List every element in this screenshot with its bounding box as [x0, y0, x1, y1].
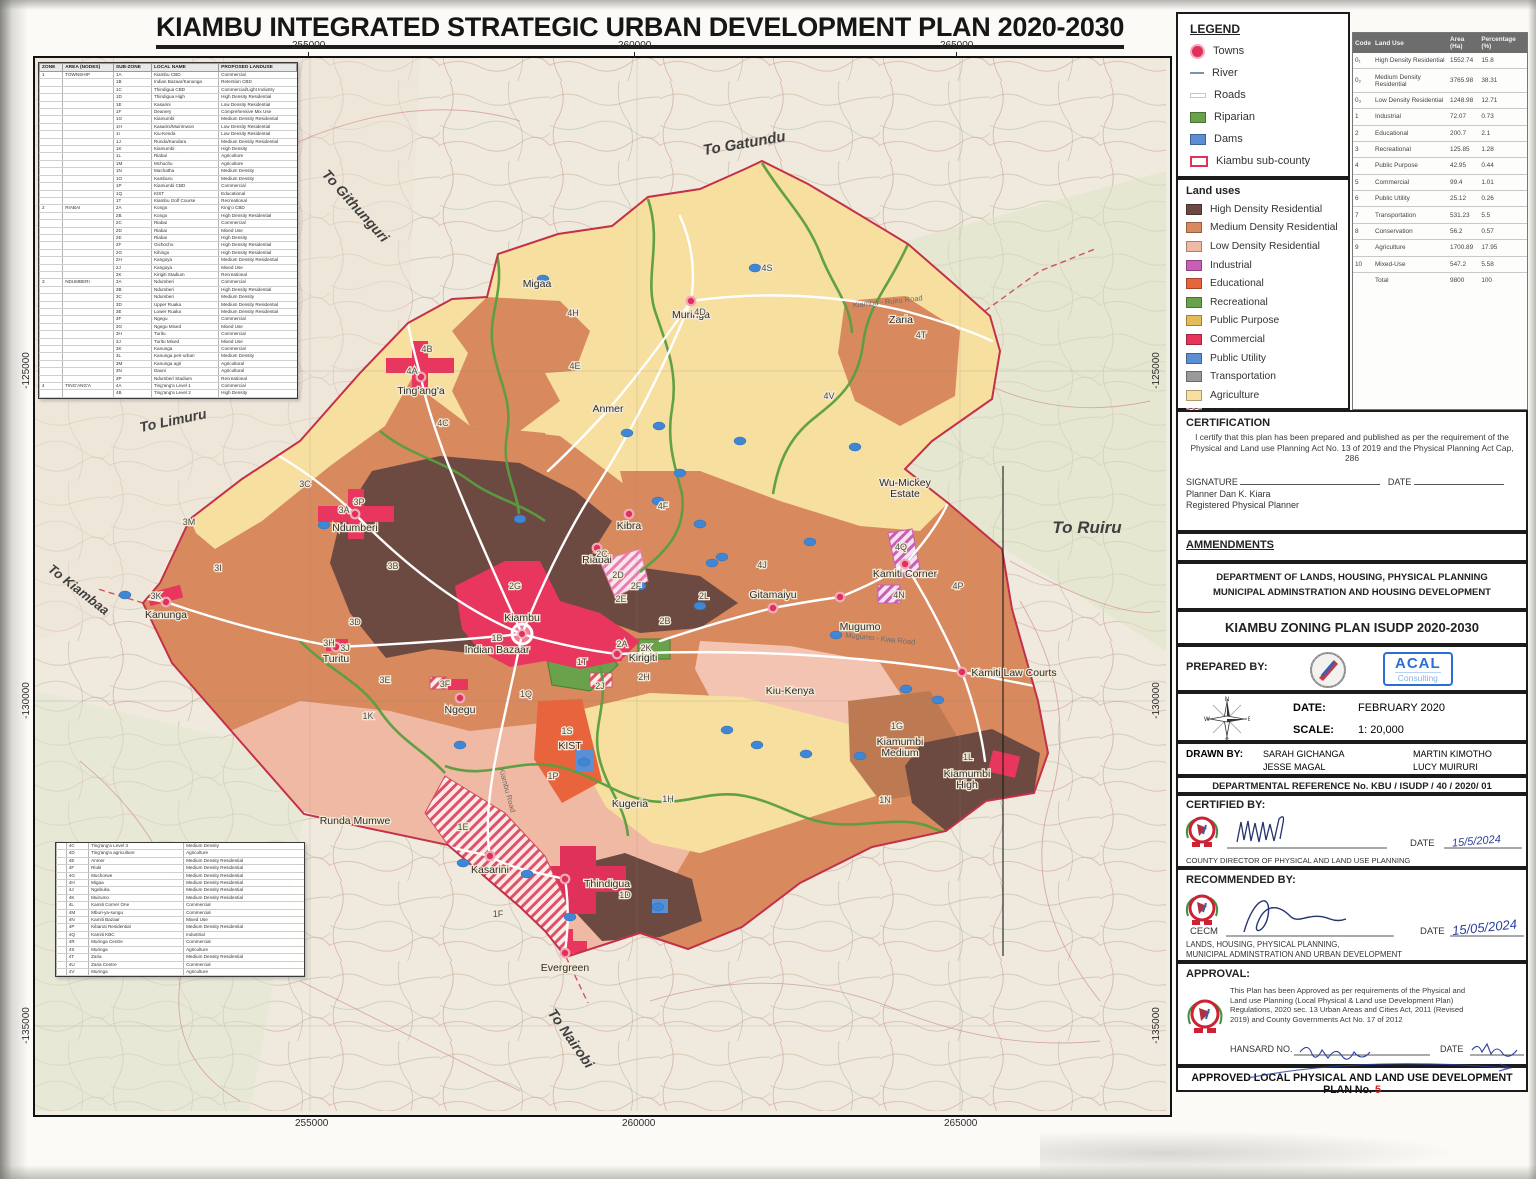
dam [652, 903, 664, 911]
zone-code: 2D [612, 570, 624, 580]
town-label: Kamiti Corner [873, 568, 938, 580]
zone-code: 3P [353, 497, 364, 507]
zone-code: 4V [823, 391, 834, 401]
place-label: KIST [558, 740, 582, 752]
zone-table-row: 2JKangoyaMixed Use [40, 264, 297, 271]
place-label: Kugeria [612, 798, 648, 810]
town-label: Gitamaiyu [749, 589, 796, 601]
legend-item: Towns [1190, 40, 1348, 62]
zone-table-row: 4MMburi-ya-sunguCommercial [57, 909, 305, 916]
zone-table-top: ZONEAREA (NODES)SUB-ZONELOCAL NAMEPROPOS… [38, 62, 298, 399]
stats-row: 7Transportation531.235.5 [1353, 207, 1527, 223]
zone-code: 3D [349, 617, 361, 627]
zone-table-row: 3ELower RuakaMedium Density Residential [40, 309, 297, 316]
town-dot-icon [958, 668, 967, 677]
zone-table-row: 4LKamiti Corner OneCommercial [57, 902, 305, 909]
direction-label: To Ruiru [1052, 518, 1122, 537]
approved-plan-bar: APPROVED LOCAL PHYSICAL AND LAND USE DEV… [1176, 1066, 1528, 1092]
zone-table-row: 4GMuchorweMedium Density Residential [57, 872, 305, 879]
dam [734, 437, 746, 445]
zone-table-row: 2HKangoyaMedium Density Residential [40, 257, 297, 264]
recommended-signature [1244, 901, 1346, 932]
signature-row: SIGNATURE DATE [1186, 474, 1518, 487]
zone-table-row: 3KKanungaCommercial [40, 346, 297, 353]
dam [694, 602, 706, 610]
town-label: Evergreen [541, 962, 590, 974]
zone-code: 4N [893, 590, 905, 600]
dept-ref-box: DEPARTMENTAL REFERENCE No. KBU / ISUDP /… [1176, 776, 1528, 794]
recommended-signature-area: CECM DATE 15/05/2024 [1182, 888, 1526, 940]
stats-row: 5Commercial99.41.01 [1353, 174, 1527, 190]
place-label: Migaa [523, 278, 552, 290]
zone-code: 1D [619, 890, 631, 900]
zone-table-row: 4VMuringaAgriculture [57, 968, 305, 975]
town-label: Ndumberi [332, 522, 378, 534]
dam [800, 750, 812, 758]
town-label: Kanunga [145, 609, 187, 621]
zone-table-row: 4EAnmerMedium Density Residential [57, 857, 305, 864]
zone-table-row: 4SMuringaAgriculture [57, 946, 305, 953]
zone-table-row: 1GKiamumbiMedium Density Residential [40, 116, 297, 123]
zone-code: 3E [379, 675, 390, 685]
zone-table-row: 3MKanunga agriAgricultural [40, 360, 297, 367]
zone-code: 2K [640, 643, 651, 653]
town-dot-icon [417, 373, 426, 382]
zone-table-row: 4QKamiti KBCIndustrial [57, 931, 305, 938]
zone-table-row: 2GKihingoHigh Density Residential [40, 249, 297, 256]
zone-code: 3C [299, 479, 311, 489]
dam [621, 429, 633, 437]
legend-item: River [1190, 62, 1348, 84]
legend-item: Dams [1190, 128, 1348, 150]
zone-table-row: 4TZariaMedium Density Residential [57, 954, 305, 961]
town-label: Ngegu [445, 704, 476, 716]
landuse-legend-item: High Density Residential [1186, 200, 1348, 219]
stats-row: 0₂Medium Density Residential3765.9838.31 [1353, 69, 1527, 92]
zone-code: 4S [761, 263, 772, 273]
scan-edge-left [0, 0, 30, 1179]
town-dot-icon [769, 604, 778, 613]
planner-name: Planner Dan K. Kiara [1186, 489, 1518, 500]
stats-row: 2Educational200.72.1 [1353, 125, 1527, 141]
zone-code: 1T [577, 657, 588, 667]
approval-box: APPROVAL: This Plan has been Approved as… [1176, 962, 1528, 1066]
zone-table-row: 1EKasariniLow Density Residential [40, 101, 297, 108]
town-dot-icon [901, 560, 910, 569]
town-dot-icon [518, 630, 526, 638]
zone-table-row: 4TING'ANG'A4ATing'ang'a Level 1Commercia… [40, 383, 297, 390]
landuse-swatch-icon [1186, 390, 1202, 401]
drawn-name-3: MARTIN KIMOTHO [1413, 749, 1492, 759]
grid-coord-left-2: -130000 [21, 682, 32, 719]
zone-table-row: 3GNgegu MixedMixed Use [40, 323, 297, 330]
dam [849, 443, 861, 451]
zone-table-row: 2FGichochoHigh Density Residential [40, 242, 297, 249]
certified-title: COUNTY DIRECTOR OF PHYSICAL AND LAND USE… [1186, 856, 1410, 865]
zone-code: 1L [963, 752, 973, 762]
zone-code: 3H [323, 638, 335, 648]
zone-table-row: 1PKiamumbi CBDCommercial [40, 183, 297, 190]
date-label: DATE: [1293, 702, 1326, 714]
zone-table-row: 4CTing'ang'a Level 3Medium Density [57, 843, 305, 850]
zone-table-row: 1LRiabaiAgriculture [40, 153, 297, 160]
stats-row: 4Public Purpose42.950.44 [1353, 158, 1527, 174]
zone-code: 3A [338, 505, 349, 515]
hansard-row: HANSARD NO. DATE [1182, 1038, 1526, 1064]
zone-table-row: 1QKISTEducational [40, 190, 297, 197]
dam [932, 696, 944, 704]
prepared-by-label: PREPARED BY: [1186, 661, 1268, 673]
recommended-dept1: LANDS, HOUSING, PHYSICAL PLANNING, [1186, 940, 1340, 949]
zone-code: 1K [362, 711, 373, 721]
zone-table-row: 4KMuirumoMedium Density Residential [57, 894, 305, 901]
zone-table-row: 3NDUMBERI3ANdumberiCommercial [40, 279, 297, 286]
town-label: Kasarini [471, 864, 509, 876]
certification-box: CERTIFICATION I certify that this plan h… [1176, 410, 1528, 532]
zone-table-row: 3JTuritu MixedMixed Use [40, 338, 297, 345]
legend-item: Roads [1190, 84, 1348, 106]
landuse-legend-item: Recreational [1186, 293, 1348, 312]
grid-coord-bottom-1: 255000 [295, 1118, 328, 1129]
grid-coord-left-1: -125000 [21, 352, 32, 389]
zone-code: 1S [561, 726, 572, 736]
svg-text:N: N [1225, 697, 1229, 703]
svg-text:E: E [1248, 717, 1250, 723]
zone-table-row: 1MMchuchuAgriculture [40, 160, 297, 167]
zone-code: 4E [569, 361, 580, 371]
zone-table-row: 2DRiabaiMixed Use [40, 227, 297, 234]
zone-table-row: 4FRiukiMedium Density Residential [57, 865, 305, 872]
stats-row: 6Public Utility25.120.26 [1353, 191, 1527, 207]
grid-coord-right-1: -125000 [1151, 352, 1162, 389]
place-label: Kiu-Kenya [766, 685, 815, 697]
prepared-by-box: PREPARED BY: ACAL Consulting [1176, 645, 1528, 692]
zone-code: 1G [891, 721, 903, 731]
certified-date-handwritten: 15/5/2024 [1452, 833, 1502, 849]
zone-table-row: 4NKamiti BazaarMixed Use [57, 917, 305, 924]
svg-text:W: W [1204, 717, 1210, 723]
zone-code: 4T [916, 330, 927, 340]
drawn-name-2: JESSE MAGAL [1263, 762, 1326, 772]
scale-label: SCALE: [1293, 724, 1334, 736]
cecm-label: CECM [1190, 926, 1218, 937]
county-seal [1187, 818, 1217, 847]
town-label: Kibra [617, 520, 642, 532]
zone-table-row: 1IKiu-KendaLow Density Residential [40, 131, 297, 138]
place-label: Indian Bazaar [465, 644, 530, 656]
recommended-dept2: MUNICIPAL ADMINSTRATION AND URBAN DEVELO… [1186, 950, 1402, 959]
place-label: KiamumbiMedium [877, 736, 924, 759]
approval-date-label: DATE [1440, 1044, 1463, 1054]
drawn-name-4: LUCY MUIRURI [1413, 762, 1478, 772]
zone-table-row: 1JRunda/KandaraMedium Density Residentia… [40, 138, 297, 145]
zone-table-row: 1OKamburuMedium Density [40, 175, 297, 182]
zone-table-row: 3NDauniAgricultural [40, 368, 297, 375]
zone-code: 4C [437, 418, 449, 428]
zone-code: 1H [662, 794, 674, 804]
zone-code: 4P [952, 581, 963, 591]
zone-table-row: 3HTurituCommercial [40, 331, 297, 338]
zone-code: 3B [387, 561, 398, 571]
landuse-legend-item: Transportation [1186, 367, 1348, 386]
hansard-handwriting [1300, 1047, 1370, 1059]
stats-row: 1Industrial72.070.73 [1353, 109, 1527, 125]
place-label: Zaria [889, 314, 913, 326]
info-panel: LEGEND TownsRiverRoadsRiparianDamsKiambu… [1172, 8, 1530, 1108]
landuse-swatch-icon [1186, 334, 1202, 345]
certified-signature [1237, 817, 1284, 842]
landuse-legend-item: Public Purpose [1186, 312, 1348, 331]
zone-table-row: 4DTing'ang'a agricultureAgriculture [57, 850, 305, 857]
legend-item: Riparian [1190, 106, 1348, 128]
landuse-legend-item: Medium Density Residential [1186, 219, 1348, 238]
certification-heading: CERTIFICATION [1186, 417, 1526, 429]
grid-coord-top-1: 255000 [292, 40, 325, 57]
planner-title: Registered Physical Planner [1186, 500, 1518, 511]
town-dot-icon [687, 297, 696, 306]
amendments-box: AMMENDMENTS [1176, 532, 1528, 562]
place-label: Runda Mumwe [320, 815, 391, 827]
approval-heading: APPROVAL: [1186, 968, 1526, 980]
zoning-title-box: KIAMBU ZONING PLAN ISUDP 2020-2030 [1176, 610, 1528, 645]
zone-code: 2G [509, 581, 521, 591]
zone-table-row: 4UZaria CentreCommercial [57, 961, 305, 968]
zone-code: 1P [547, 771, 558, 781]
acal-logo: ACAL Consulting [1383, 652, 1453, 686]
stats-row: 9Agriculture1700.8917.95 [1353, 240, 1527, 256]
zone-table-row: 2ERiabaiHigh Density [40, 234, 297, 241]
scan-crinkle [1040, 1130, 1460, 1176]
zone-table-row: 3DUpper RuakaMedium Density Residential [40, 301, 297, 308]
stats-row: Total9800100 [1353, 272, 1527, 288]
grid-coord-left-3: -135000 [21, 1007, 32, 1044]
zone-code: 2B [659, 616, 670, 626]
town-label: Ting'ang'a [397, 385, 445, 397]
date-scale-box: N E S W DATE: FEBRUARY 2020 SCALE: 1: 20… [1176, 692, 1528, 742]
zone-table-row: 2RIABAI2AKongoKing'o CBD [40, 205, 297, 212]
landuse-swatch-icon [1186, 204, 1202, 215]
dam [854, 752, 866, 760]
recommended-by-box: RECOMMENDED BY: CECM DATE 15/05/2024 LAN… [1176, 868, 1528, 962]
landuse-legend-box: Land uses High Density ResidentialMedium… [1176, 178, 1350, 410]
amendments-heading: AMMENDMENTS [1186, 539, 1526, 551]
department-line2: MUNICIPAL ADMINSTRATION AND HOUSING DEVE… [1178, 587, 1526, 598]
landuse-stats-table: CodeLand UseArea (Ha)Percentage (%)0₁Hig… [1352, 32, 1528, 410]
department-box: DEPARTMENT OF LANDS, HOUSING, PHYSICAL P… [1176, 562, 1528, 610]
stats-row: 0₁High Density Residential1552.7415.8 [1353, 53, 1527, 69]
certified-by-box: CERTIFIED BY: DATE 15/5/2024 COUNTY DIRE… [1176, 794, 1528, 868]
zone-table-row: 1TOWNSHIP1AKiambu CBDCommercial [40, 72, 297, 79]
dam [578, 758, 590, 766]
stats-row: 3Recreational125.851.28 [1353, 141, 1527, 157]
stats-row: 10Mixed-Use547.25.58 [1353, 256, 1527, 272]
towns-symbol-icon [1190, 44, 1205, 59]
town-label: Kamiti Law Courts [971, 667, 1056, 679]
zone-table-row: 2BKongoHigh Density Residential [40, 212, 297, 219]
town-dot-icon [456, 694, 465, 703]
landuse-legend-item: Public Utility [1186, 349, 1348, 368]
stats-row: 0₃Low Density Residential1248.9812.71 [1353, 92, 1527, 108]
zone-table-row: 1HKasarini/MuirimwonLow Density Resident… [40, 123, 297, 130]
landuse-legend-item: Educational [1186, 274, 1348, 293]
riparian-symbol-icon [1190, 112, 1206, 123]
zone-table-row: 4RMuringa CentreCommercial [57, 939, 305, 946]
legend-item: Kiambu sub-county [1190, 150, 1348, 172]
zone-table-row: 3FNgeguCommercial [40, 316, 297, 323]
town-dot-icon [613, 650, 622, 659]
zone-code: 3K [150, 591, 161, 601]
zone-table-row: 1BIndian Bazaar/KanungaRetention CBD [40, 79, 297, 86]
town-label: Kiambu [504, 612, 540, 624]
certified-date-label: DATE [1410, 838, 1435, 849]
landuse-heading: Land uses [1186, 185, 1348, 197]
landuse-swatch-icon [1186, 260, 1202, 271]
zone-code: 4Q [895, 542, 907, 552]
recommended-date-handwritten: 15/05/2024 [1451, 916, 1517, 938]
zone-code: 1E [457, 822, 468, 832]
dam [674, 469, 686, 477]
zone-table-row: 3LKanunga peri-urbanMedium Density [40, 353, 297, 360]
approved-bar-text: APPROVED LOCAL PHYSICAL AND LAND USE DEV… [1191, 1072, 1512, 1096]
dam [694, 520, 706, 528]
zone-code: 3F [440, 679, 451, 689]
grid-coord-top-3: 265000 [940, 40, 973, 57]
zone-code: 1B [491, 633, 502, 643]
county-seal [1182, 992, 1226, 1042]
zone-table-row: 4PKibaruti ResidentialMedium Density Res… [57, 924, 305, 931]
certification-body: I certify that this plan has been prepar… [1188, 432, 1516, 464]
zone-code: 4A [406, 366, 417, 376]
landuse-swatch-icon [1186, 297, 1202, 308]
dam [521, 870, 533, 878]
zone-table-row: 1DThindigua HighHigh Density Residential [40, 94, 297, 101]
dam [119, 591, 131, 599]
landuse-swatch-icon [1186, 315, 1202, 326]
zone-code: 3J [340, 643, 350, 653]
dam [653, 422, 665, 430]
drawn-by-label: DRAWN BY: [1186, 749, 1243, 760]
zone-code: 3I [214, 563, 222, 573]
county-seal [1187, 896, 1217, 925]
landuse-legend-item: Low Density Residential [1186, 237, 1348, 256]
zone-table-row: 1FDeaneryComprehensive Mix Use [40, 109, 297, 116]
town-label: Kirigiti [629, 652, 658, 664]
certified-signature-area: DATE 15/5/2024 [1182, 812, 1526, 860]
zone-table-row: 3BNdumberiHigh Density Residential [40, 286, 297, 293]
legend-heading: LEGEND [1190, 22, 1348, 36]
zone-code: 4F [658, 501, 669, 511]
grid-coord-right-3: -135000 [1151, 1007, 1162, 1044]
grid-coord-right-2: -130000 [1151, 682, 1162, 719]
landuse-swatch-icon [1186, 353, 1202, 364]
dam [564, 913, 576, 921]
dam [749, 264, 761, 272]
zone-code: 2J [595, 681, 605, 691]
zone-table-row: 1NMuchathaMedium Density [40, 168, 297, 175]
approval-date-handwriting [1472, 1044, 1517, 1056]
landuse-swatch-icon [1186, 371, 1202, 382]
zone-code: 1F [493, 909, 504, 919]
departmental-reference: DEPARTMENTAL REFERENCE No. KBU / ISUDP /… [1178, 781, 1526, 792]
zone-table-row: 1CThindigua CBDCommercial/Light Industry [40, 86, 297, 93]
landuse-legend-item: Industrial [1186, 256, 1348, 275]
zone-code: 2A [616, 639, 627, 649]
landuse-legend-item: Agriculture [1186, 386, 1348, 405]
zone-table-row: 1TKiambu Golf CourseRecreational [40, 197, 297, 204]
dam [751, 741, 763, 749]
dam [454, 741, 466, 749]
zone-table-row: 3CNdumberiMedium Density [40, 294, 297, 301]
roads-symbol-icon [1190, 93, 1206, 98]
dam [514, 515, 526, 523]
date-value: FEBRUARY 2020 [1358, 702, 1445, 714]
zone-code: 4D [694, 307, 706, 317]
town-dot-icon [486, 852, 495, 861]
town-dot-icon [162, 598, 171, 607]
landuse-legend-item: Commercial [1186, 330, 1348, 349]
zone-table-row: 2CRiabaiCommercial [40, 220, 297, 227]
zone-code: 2H [638, 672, 650, 682]
town-dot-icon [561, 949, 570, 958]
department-line1: DEPARTMENT OF LANDS, HOUSING, PHYSICAL P… [1178, 572, 1526, 583]
zone-code: 2F [631, 581, 642, 591]
town-label: Thindigua [584, 878, 630, 890]
zone-table-row: 2KKirigiti StadiumRecreational [40, 271, 297, 278]
zone-code: 3M [183, 517, 196, 527]
dams-symbol-icon [1190, 134, 1206, 145]
dam [706, 559, 718, 567]
stats-row: 8Conservation56.20.57 [1353, 223, 1527, 239]
dam [318, 521, 330, 529]
grid-coord-top-2: 260000 [618, 40, 651, 57]
recommended-date-label: DATE [1420, 926, 1445, 937]
grid-coord-bottom-3: 265000 [944, 1118, 977, 1129]
zone-code: 2E [615, 594, 626, 604]
town-dot-icon [625, 510, 634, 519]
drawn-name-1: SARAH GICHANGA [1263, 749, 1345, 759]
legend-box: LEGEND TownsRiverRoadsRiparianDamsKiambu… [1176, 12, 1350, 178]
zone-code: 1Q [520, 689, 532, 699]
landuse-swatch-icon [1186, 241, 1202, 252]
scale-value: 1: 20,000 [1358, 724, 1404, 736]
kiambu-sub-county-symbol-icon [1190, 156, 1208, 167]
landuse-swatch-icon [1186, 278, 1202, 289]
landuse-swatch-icon [1186, 222, 1202, 233]
zone-table-row: 3PNdumberi StadiumRecreational [40, 375, 297, 382]
town-dot-icon [561, 875, 570, 884]
plan-number: 5 [1375, 1084, 1381, 1096]
zone-table-bottom: 4CTing'ang'a Level 3Medium Density4DTing… [55, 842, 305, 977]
zone-code: 1N [879, 795, 891, 805]
town-dot-icon [836, 593, 845, 602]
zone-table-row: 1KKiamumbiHigh Density [40, 146, 297, 153]
dam [804, 538, 816, 546]
river-symbol-icon [1190, 72, 1204, 74]
zone-code: 2C [596, 549, 608, 559]
scanned-plan-sheet: KIAMBU INTEGRATED STRATEGIC URBAN DEVELO… [0, 0, 1536, 1179]
hansard-label: HANSARD NO. [1230, 1044, 1293, 1054]
zone-code: 4J [757, 560, 767, 570]
zone-table-row: 4JNgebukaMedium Density Residential [57, 887, 305, 894]
zone-code: 2L [699, 591, 709, 601]
zone-table-row: 4HMigaaMedium Density Residential [57, 880, 305, 887]
town-label: Turitu [323, 653, 350, 665]
drawn-by-box: DRAWN BY: SARAH GICHANGA JESSE MAGAL MAR… [1176, 742, 1528, 776]
dam [716, 553, 728, 561]
grid-coord-bottom-2: 260000 [622, 1118, 655, 1129]
place-label: Anmer [593, 403, 624, 415]
town-dot-icon [351, 510, 360, 519]
